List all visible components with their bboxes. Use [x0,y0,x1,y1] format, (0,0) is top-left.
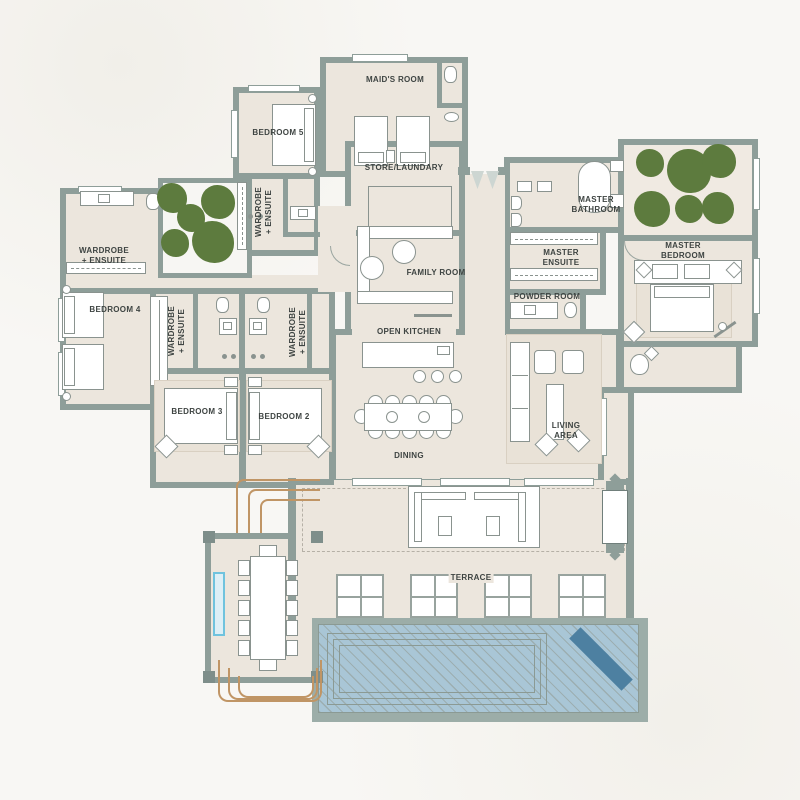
corridor-right-opening [612,425,624,470]
nightstand [652,264,678,279]
room-label-family-room: FAMILY ROOM [407,268,466,278]
wardrobe-line [159,300,160,382]
room-label-bedroom4: BEDROOM 4 [89,305,140,315]
sunbed-line [434,576,436,616]
sunbed-line [508,576,510,616]
outdoor-sofa [414,492,422,542]
outdoor-chair [238,620,250,636]
fixture-dot [260,354,265,359]
tv-unit [414,314,452,317]
room-label-dining: DINING [394,451,424,461]
sliding-door [352,478,422,486]
sunbed [558,574,606,618]
bed-pillow [358,152,384,163]
toilet [216,297,229,313]
landscape-line [260,499,320,533]
room-label-master-ensuite: MASTER ENSUITE [543,248,580,268]
sunbed-line [582,576,584,616]
pavilion-window [213,572,225,636]
carved-door [602,490,628,544]
wardrobe-rail [510,232,598,245]
outdoor-side-table [438,516,452,536]
tree [192,221,234,263]
sink [517,181,532,192]
courtyard-left-wall-restrike [158,273,252,278]
sofa-cushion-line [512,408,528,409]
room-label-powder-room: POWDER ROOM [514,292,580,302]
sink [298,209,308,217]
bed-pillow [64,348,75,386]
room-label-bedroom2: BEDROOM 2 [258,412,309,422]
tree [636,149,664,177]
wardrobe-rail [510,268,598,281]
bath23-divider [239,292,245,370]
outdoor-dining-table [250,556,286,660]
outdoor-chair [238,560,250,576]
sink [253,322,262,330]
entry-hall [465,174,505,336]
toilet [564,302,577,318]
toilet [444,66,457,83]
window [231,110,238,158]
nightstand [248,377,262,387]
tree [702,192,734,224]
nightstand [248,445,262,455]
wardrobe5-bath-partition [283,232,320,237]
outdoor-chair [286,620,298,636]
island-sink [437,346,450,355]
room-label-bedroom5: BEDROOM 5 [252,128,303,138]
rail-dash [71,268,141,269]
room-label-bedroom3: BEDROOM 3 [171,407,222,417]
bath23-partition [193,292,198,370]
window [352,54,408,62]
pavilion-pillar [203,671,215,683]
toilet [511,196,522,210]
nightstand [386,150,395,163]
table-pedestal [386,411,398,423]
family-sofa [357,226,453,239]
sliding-door [440,478,510,486]
valet-stand-seat [718,322,727,331]
sink [98,194,110,203]
pavilion-pillar [203,531,215,543]
entry-jamb [498,167,510,175]
bed-pillow [226,392,237,440]
tree [201,185,235,219]
table-pedestal [418,411,430,423]
fixture-dot [251,354,256,359]
bedside-lamp [308,94,317,103]
outdoor-chair [286,580,298,596]
pool-lounger [593,651,633,691]
outdoor-chair [286,640,298,656]
bedside-lamp [308,167,317,176]
bidet [511,213,522,227]
rail-dash [515,239,593,240]
armchair [534,350,556,374]
tree [675,195,703,223]
sink [444,112,459,122]
family-sofa [357,291,453,304]
bed-pillow [654,286,710,298]
room-label-wardrobe-ensuite-5: WARDROBE + ENSUITE [254,187,274,237]
stool [431,370,444,383]
swimming-pool [312,618,648,722]
nightstand [224,445,238,455]
lounge-chair [630,354,649,375]
bed-pillow [400,152,426,163]
room-label-living-area: LIVING AREA [552,421,580,441]
living-sofa [510,342,530,442]
tree [702,144,736,178]
fixture-dot [248,214,253,219]
bedside-lamp [62,285,71,294]
maid-wc-partition [437,60,442,108]
fixture-dot [222,354,227,359]
room-label-wardrobe-ensuite-4: WARDROBE + ENSUITE [79,246,129,266]
room-label-terrace: TERRACE [449,573,494,583]
nightstand [684,264,710,279]
landscape-line [238,676,314,698]
stool [449,370,462,383]
room-label-wardrobe-ensuite-3: WARDROBE + ENSUITE [167,306,187,356]
bedside-lamp [62,392,71,401]
outdoor-side-table [486,516,500,536]
nightstand [224,377,238,387]
outdoor-sofa [518,492,526,542]
wardrobe-rail [237,182,247,250]
room-label-master-bedroom: MASTER BEDROOM [661,241,705,261]
pouf [392,240,416,264]
dining-table [364,403,452,431]
room-label-wardrobe-ensuite-2: WARDROBE + ENSUITE [288,307,308,357]
room-label-maids-room: MAID'S ROOM [366,75,424,85]
shower-cubicle [610,160,624,172]
pool-water [318,624,639,713]
sink [223,322,232,330]
window [248,85,300,92]
room-label-master-bathroom: MASTER BATHROOM [572,195,621,215]
wardrobe5-bath-partition [283,179,288,234]
terrace-dashed-line [302,551,624,552]
entry-jamb [458,167,470,175]
outdoor-chair [238,580,250,596]
armchair [562,350,584,374]
tree [634,191,670,227]
pouf [360,256,384,280]
toilet [257,297,270,313]
window [753,258,760,314]
sunbed-line [360,576,362,616]
floor-plan: MAID'S ROOM BEDROOM 5 WARDROBE + ENSUITE… [0,0,800,800]
window [753,158,760,210]
outdoor-chair [238,600,250,616]
outdoor-chair [238,640,250,656]
sink [537,181,552,192]
room-label-open-kitchen: OPEN KITCHEN [377,327,441,337]
bed-pillow [304,108,314,162]
rail-dash [242,187,243,245]
sliding-door [524,478,594,486]
pool-step-line [339,645,535,693]
maid-wc-partition [437,103,465,108]
sofa-cushion-line [512,375,528,376]
sink [524,305,536,315]
outdoor-chair [286,560,298,576]
room-label-store-laundry: STORE/LAUNDARY [365,163,443,173]
sunbed [336,574,384,618]
stool [413,370,426,383]
fixture-dot [231,354,236,359]
outdoor-chair [286,600,298,616]
rail-dash [515,275,593,276]
bed-pillow [64,296,75,334]
tree [161,229,189,257]
